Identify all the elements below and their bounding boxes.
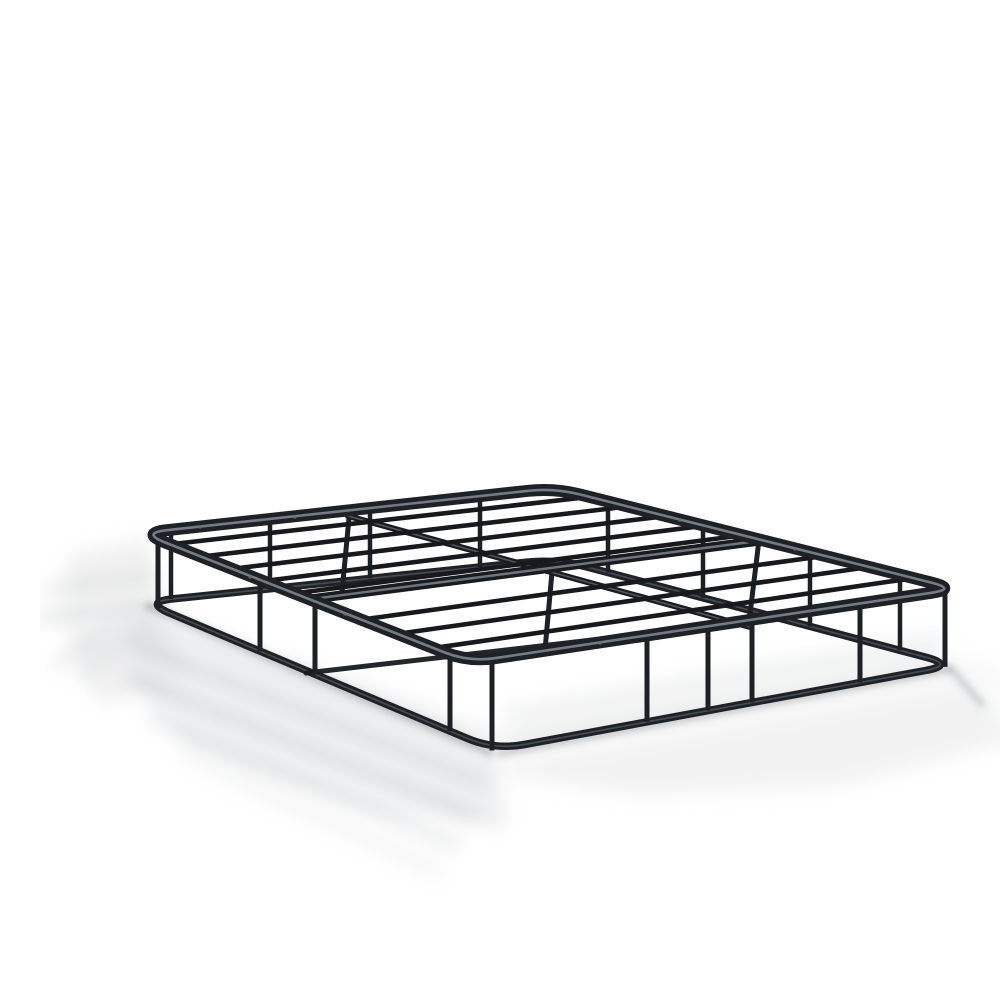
rim-screw-dot <box>808 609 811 612</box>
rim-screw-dot <box>293 515 296 518</box>
rim-screw-dot <box>343 612 346 615</box>
product-photo <box>40 16 1000 1000</box>
rim-screw-dot <box>598 641 601 644</box>
rim-screw-dot <box>248 575 251 578</box>
studio-background <box>40 16 1000 1000</box>
rim-screw-dot <box>793 547 796 550</box>
rim-screw-dot <box>198 525 201 528</box>
bed-frame-illustration <box>40 16 1000 1000</box>
rim-screw-dot <box>678 518 681 521</box>
